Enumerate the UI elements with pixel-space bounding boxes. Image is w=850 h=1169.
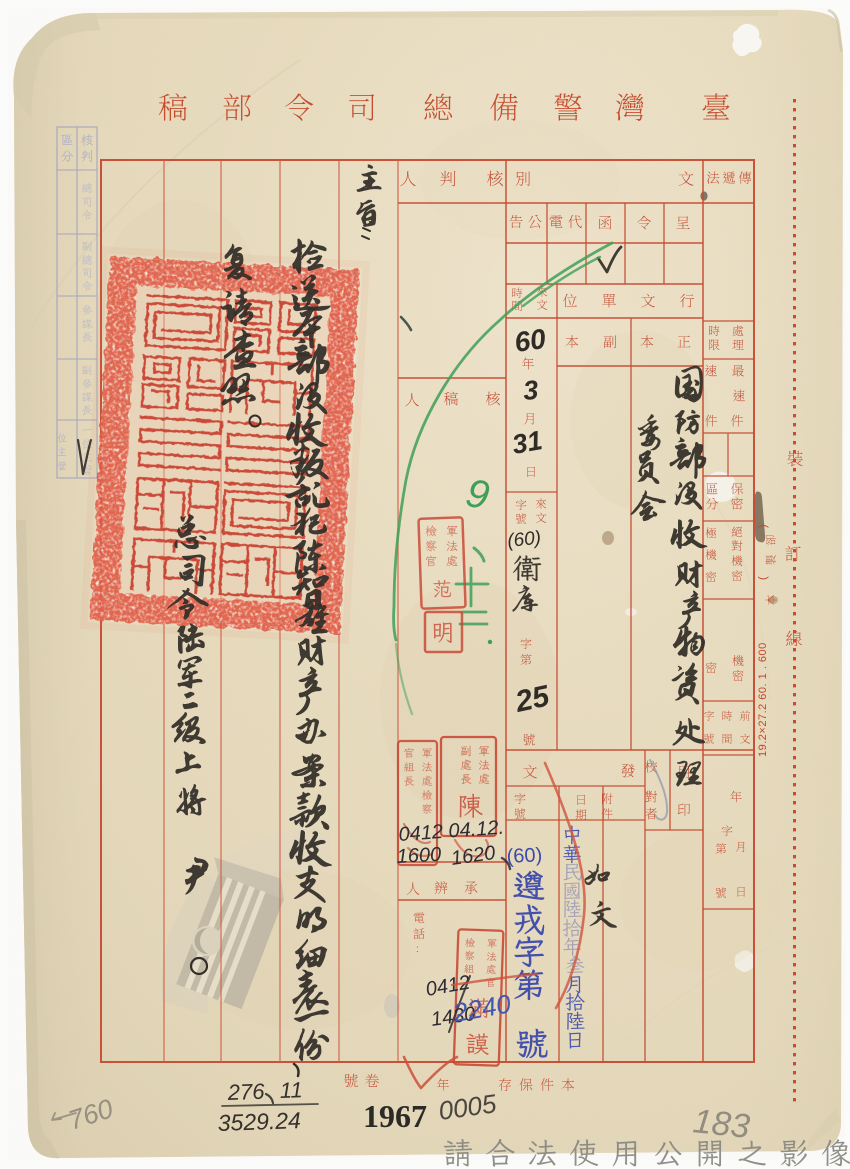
svg-text:19.2×27.2 60. 1 . 600: 19.2×27.2 60. 1 . 600 (757, 642, 769, 757)
svg-text:3: 3 (522, 375, 540, 406)
svg-text:31: 31 (510, 425, 545, 460)
svg-text:(: ( (757, 576, 769, 580)
svg-text:(60): (60) (506, 528, 542, 552)
svg-text::: : (416, 944, 419, 955)
svg-text:): ) (757, 524, 769, 528)
svg-text:1600: 1600 (396, 844, 442, 868)
svg-text:276: 276 (226, 1079, 265, 1105)
svg-text:60: 60 (513, 323, 549, 358)
svg-text:11: 11 (279, 1077, 303, 1103)
svg-text:(60): (60) (506, 844, 543, 868)
svg-text:1967: 1967 (363, 1098, 427, 1134)
svg-text:3529.24: 3529.24 (217, 1107, 301, 1136)
svg-text:183: 183 (691, 1102, 751, 1146)
